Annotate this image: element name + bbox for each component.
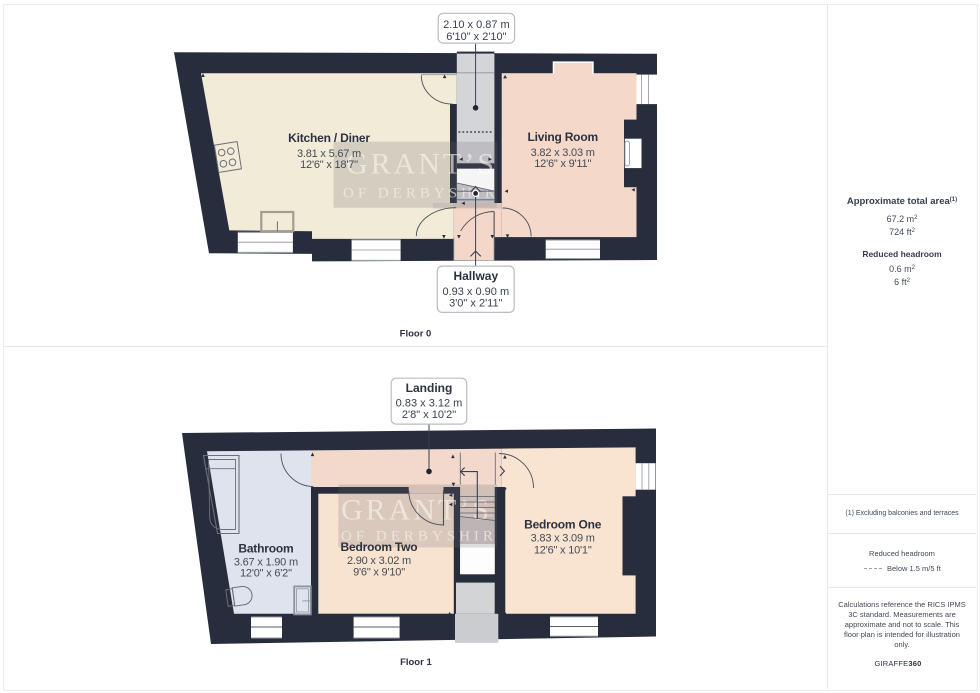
svg-text:Bedroom Two: Bedroom Two xyxy=(341,540,418,554)
svg-text:0.93 x 0.90 m: 0.93 x 0.90 m xyxy=(442,286,509,298)
svg-text:0.83 x 3.12 m: 0.83 x 3.12 m xyxy=(396,398,463,410)
svg-text:9'6" x 9'10": 9'6" x 9'10" xyxy=(353,566,405,578)
svg-text:2.10 x 0.87 m: 2.10 x 0.87 m xyxy=(443,19,510,31)
svg-text:2.90 x 3.02 m: 2.90 x 3.02 m xyxy=(347,555,411,567)
svg-text:Bedroom One: Bedroom One xyxy=(524,518,602,532)
svg-text:2'8" x 10'2": 2'8" x 10'2" xyxy=(402,409,456,421)
svg-text:12'6" x 9'11": 12'6" x 9'11" xyxy=(534,158,591,170)
svg-text:Floor 1: Floor 1 xyxy=(400,657,432,668)
svg-text:6'10" x 2'10": 6'10" x 2'10" xyxy=(446,31,506,43)
svg-text:Floor 0: Floor 0 xyxy=(400,329,432,340)
svg-text:GRANT’S: GRANT’S xyxy=(341,494,492,527)
svg-text:Kitchen / Diner: Kitchen / Diner xyxy=(288,131,370,145)
svg-text:3'0" x 2'11": 3'0" x 2'11" xyxy=(449,297,502,309)
svg-text:12'6" x 10'1": 12'6" x 10'1" xyxy=(534,545,592,557)
svg-text:3.81 x 5.67 m: 3.81 x 5.67 m xyxy=(297,148,361,160)
svg-text:Hallway: Hallway xyxy=(453,269,498,283)
svg-text:12'0" x 6'2": 12'0" x 6'2" xyxy=(240,568,292,580)
svg-text:12'6" x 18'7": 12'6" x 18'7" xyxy=(300,159,358,171)
svg-text:Bathroom: Bathroom xyxy=(238,542,293,556)
svg-text:Living Room: Living Room xyxy=(527,130,597,144)
svg-text:Landing: Landing xyxy=(406,381,453,395)
svg-text:3.82 x 3.03 m: 3.82 x 3.03 m xyxy=(531,147,595,159)
svg-text:3.83 x 3.09 m: 3.83 x 3.09 m xyxy=(531,532,595,544)
